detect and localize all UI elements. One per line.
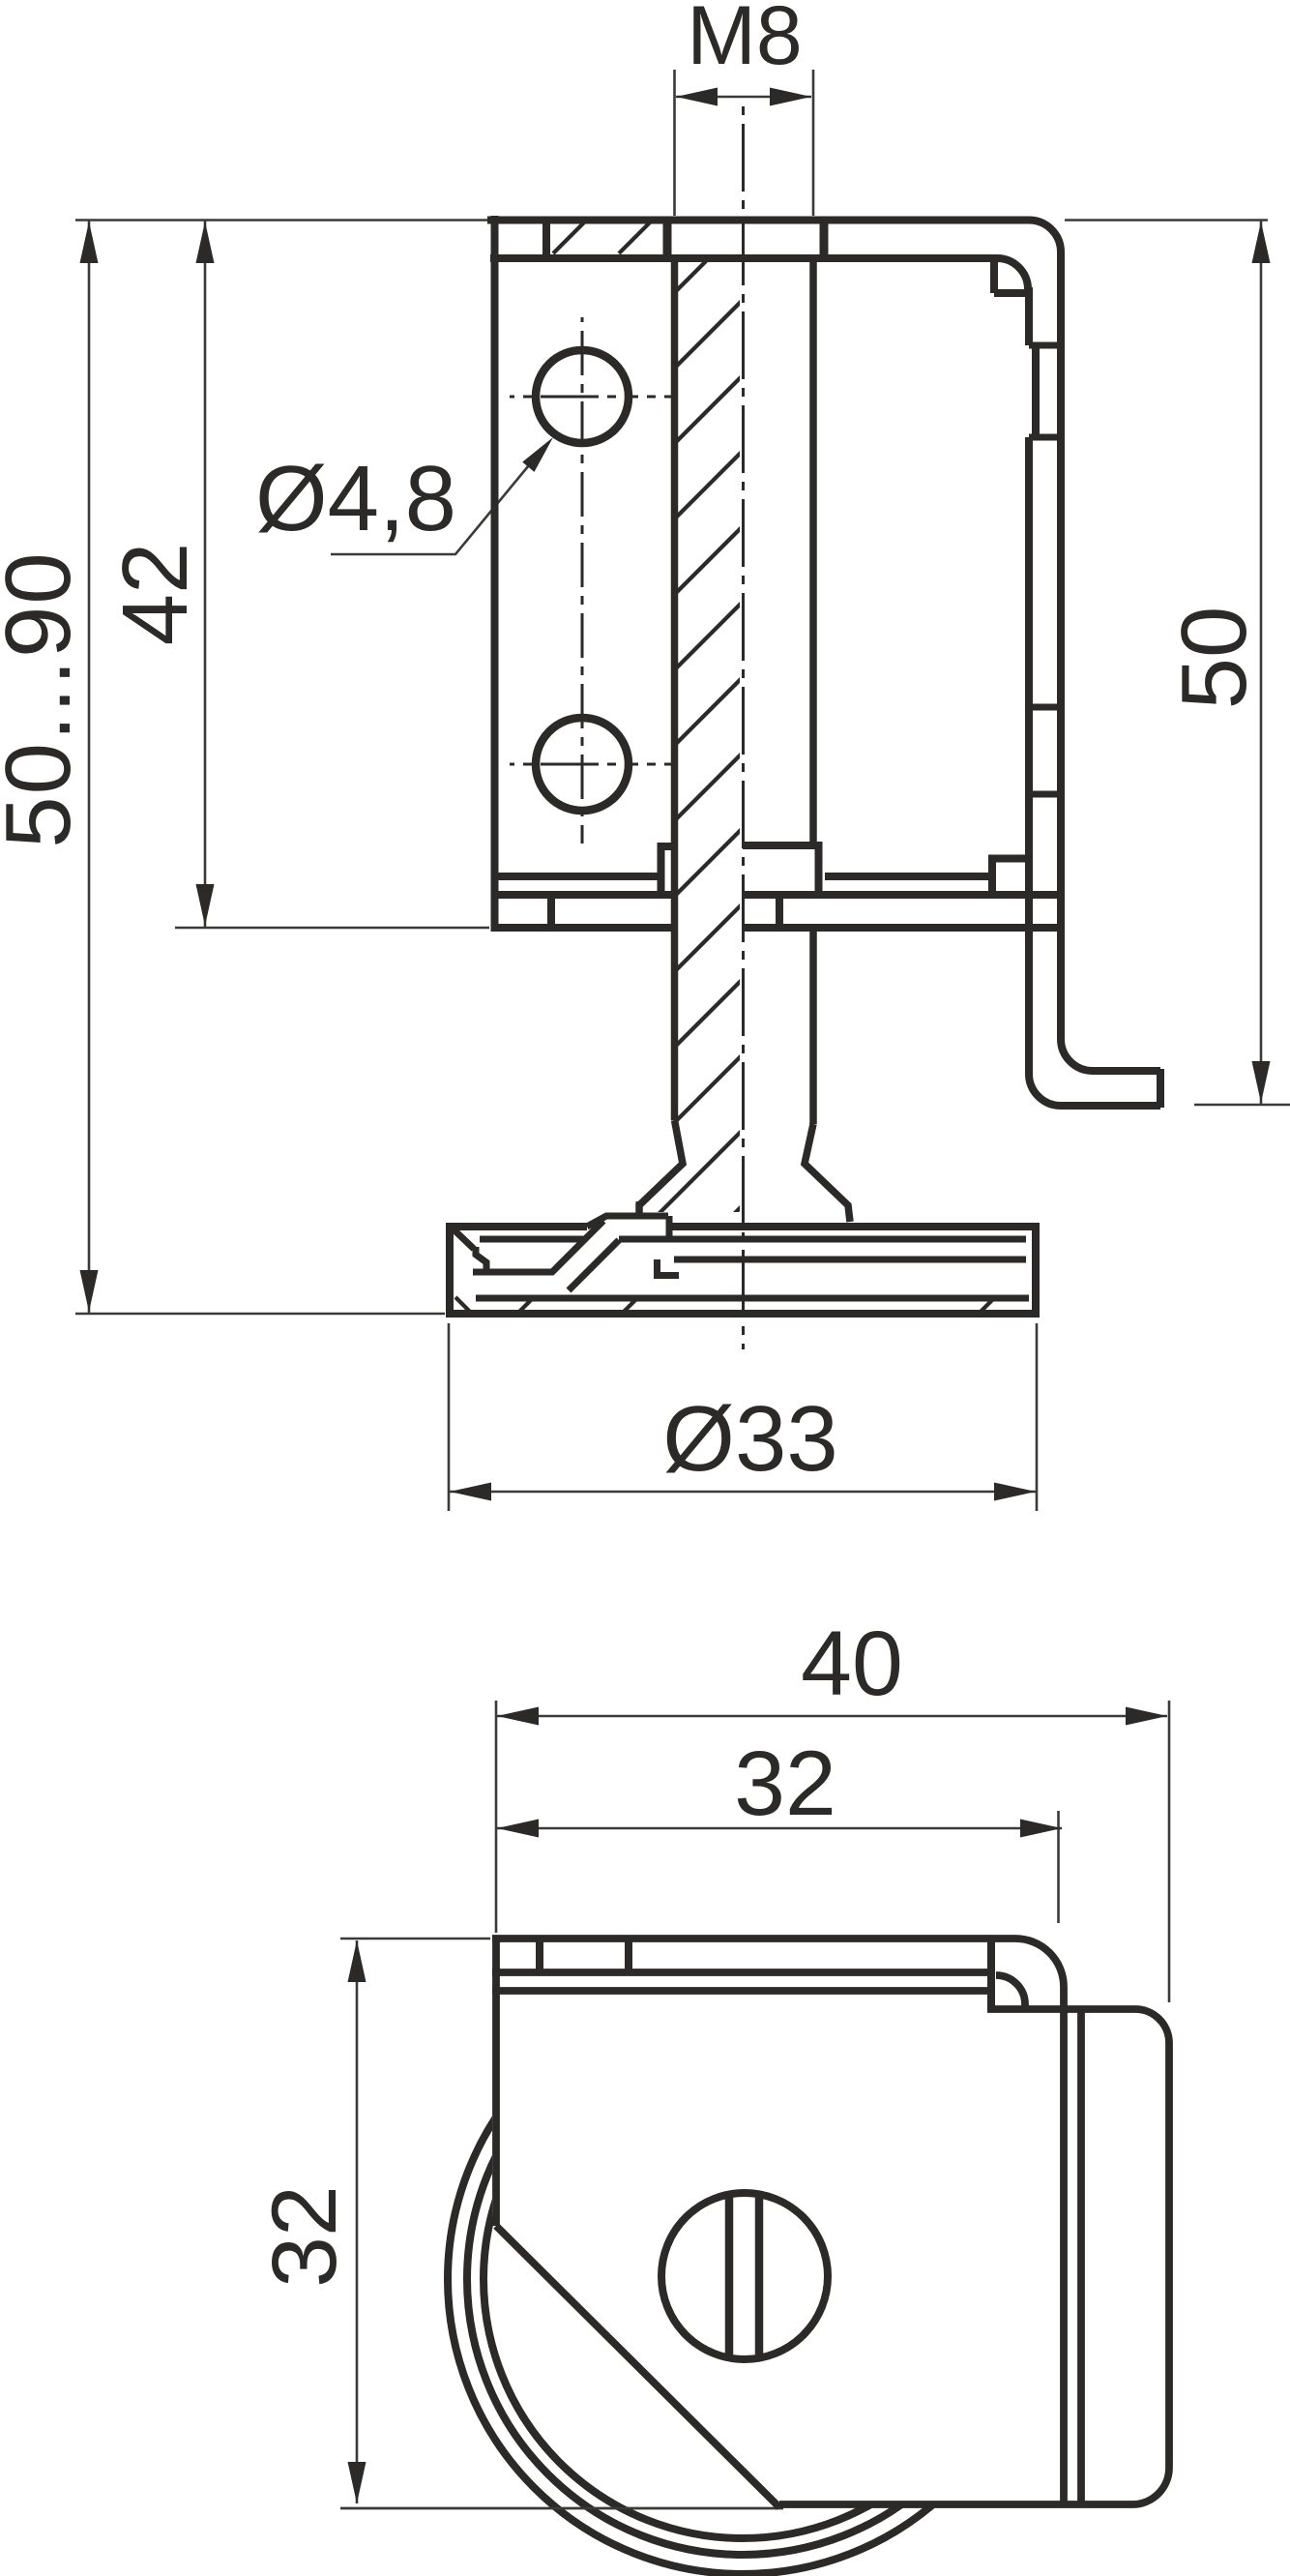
svg-text:Ø33: Ø33	[662, 1387, 837, 1491]
svg-text:Ø4,8: Ø4,8	[255, 447, 456, 550]
svg-text:32: 32	[734, 1732, 836, 1835]
svg-text:50: 50	[1162, 607, 1266, 710]
svg-text:50...90: 50...90	[0, 550, 90, 848]
svg-text:42: 42	[103, 543, 207, 646]
svg-text:M8: M8	[687, 0, 802, 82]
svg-text:40: 40	[801, 1613, 903, 1715]
svg-text:32: 32	[253, 2185, 356, 2288]
